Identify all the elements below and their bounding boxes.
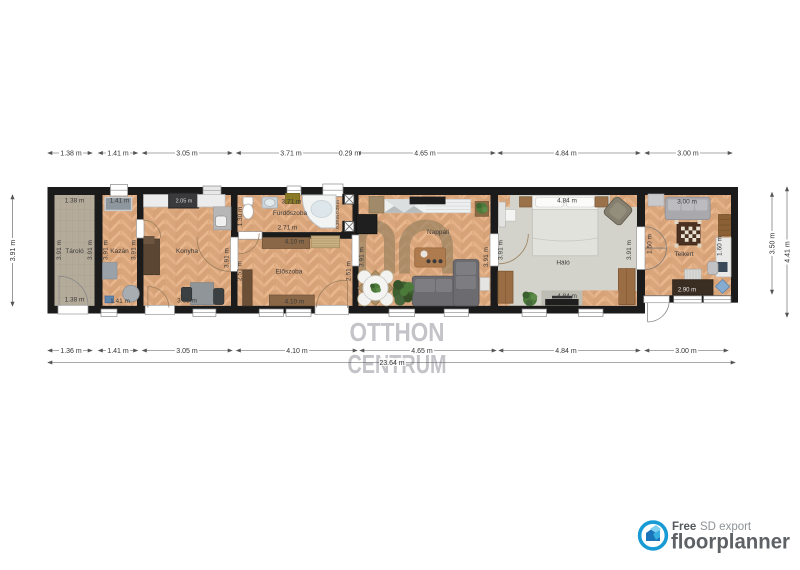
svg-text:3.05 m: 3.05 m [177, 298, 197, 305]
svg-text:3.91 m: 3.91 m [359, 247, 366, 267]
svg-text:Telkert: Telkert [674, 251, 693, 258]
svg-text:1.60 m: 1.60 m [717, 236, 724, 256]
svg-text:0.29 m: 0.29 m [339, 151, 361, 158]
svg-text:23.64 m: 23.64 m [379, 360, 404, 367]
svg-text:1.30 m: 1.30 m [237, 207, 244, 227]
svg-text:Kazán: Kazán [110, 248, 129, 255]
svg-text:3.91 m: 3.91 m [103, 240, 110, 260]
svg-text:4.10 m: 4.10 m [285, 299, 305, 306]
svg-text:Fürdőszoba: Fürdőszoba [273, 210, 308, 217]
svg-text:4.65 m: 4.65 m [414, 151, 436, 158]
svg-text:2.71 m: 2.71 m [278, 225, 298, 232]
svg-text:0.38 m: 0.38 m [335, 215, 340, 229]
svg-text:3.00 m: 3.00 m [675, 348, 697, 355]
svg-text:4.10 m: 4.10 m [285, 239, 305, 246]
svg-text:1.41 m: 1.41 m [107, 151, 129, 158]
svg-text:Háló: Háló [556, 260, 570, 267]
svg-text:3.91 m: 3.91 m [131, 240, 138, 260]
svg-text:4.84 m: 4.84 m [555, 151, 577, 158]
svg-text:1.38 m: 1.38 m [65, 297, 85, 304]
svg-text:3.91 m: 3.91 m [87, 240, 94, 260]
svg-text:4.84 m: 4.84 m [555, 348, 577, 355]
svg-text:1.50 m: 1.50 m [647, 234, 654, 254]
svg-text:4.10 m: 4.10 m [286, 348, 308, 355]
svg-text:1.38 m: 1.38 m [60, 151, 82, 158]
svg-text:1.36 m: 1.36 m [60, 348, 82, 355]
svg-text:2.51 m: 2.51 m [237, 261, 244, 281]
svg-text:4.84 m: 4.84 m [557, 198, 577, 205]
svg-text:3.91 m: 3.91 m [626, 240, 633, 260]
svg-text:OTTHON: OTTHON [350, 317, 445, 347]
svg-text:Tároló: Tároló [65, 248, 84, 255]
svg-text:1.41 m: 1.41 m [110, 298, 130, 305]
svg-text:3.00 m: 3.00 m [677, 151, 699, 158]
svg-text:Konyha: Konyha [176, 248, 198, 255]
svg-text:3.05 m: 3.05 m [176, 348, 198, 355]
svg-text:0.29 m: 0.29 m [335, 200, 340, 214]
svg-text:1.41 m: 1.41 m [110, 198, 130, 205]
svg-text:3.05 m: 3.05 m [176, 151, 198, 158]
svg-text:4.84 m: 4.84 m [557, 293, 577, 300]
svg-text:4.65 m: 4.65 m [411, 348, 433, 355]
svg-text:4.41 m: 4.41 m [785, 241, 792, 263]
svg-text:2.90 m: 2.90 m [678, 288, 696, 294]
svg-text:3.91 m: 3.91 m [224, 248, 231, 268]
svg-text:1.38 m: 1.38 m [65, 198, 85, 205]
svg-text:2.05 m: 2.05 m [176, 199, 193, 205]
svg-text:Előszoba: Előszoba [276, 269, 303, 276]
svg-text:3.91 m: 3.91 m [498, 240, 505, 260]
svg-text:Nappali: Nappali [427, 229, 449, 236]
svg-text:3.91 m: 3.91 m [483, 247, 490, 267]
svg-text:2.51 m: 2.51 m [346, 261, 353, 281]
svg-text:3.91 m: 3.91 m [56, 240, 63, 260]
svg-text:3.50 m: 3.50 m [770, 233, 777, 255]
svg-text:3.71 m: 3.71 m [282, 199, 302, 206]
svg-text:3.91 m: 3.91 m [10, 240, 17, 262]
svg-text:1.41 m: 1.41 m [107, 348, 129, 355]
svg-text:floorplanner: floorplanner [671, 531, 790, 554]
svg-text:3.71 m: 3.71 m [280, 151, 302, 158]
svg-text:3.00 m: 3.00 m [677, 199, 697, 206]
